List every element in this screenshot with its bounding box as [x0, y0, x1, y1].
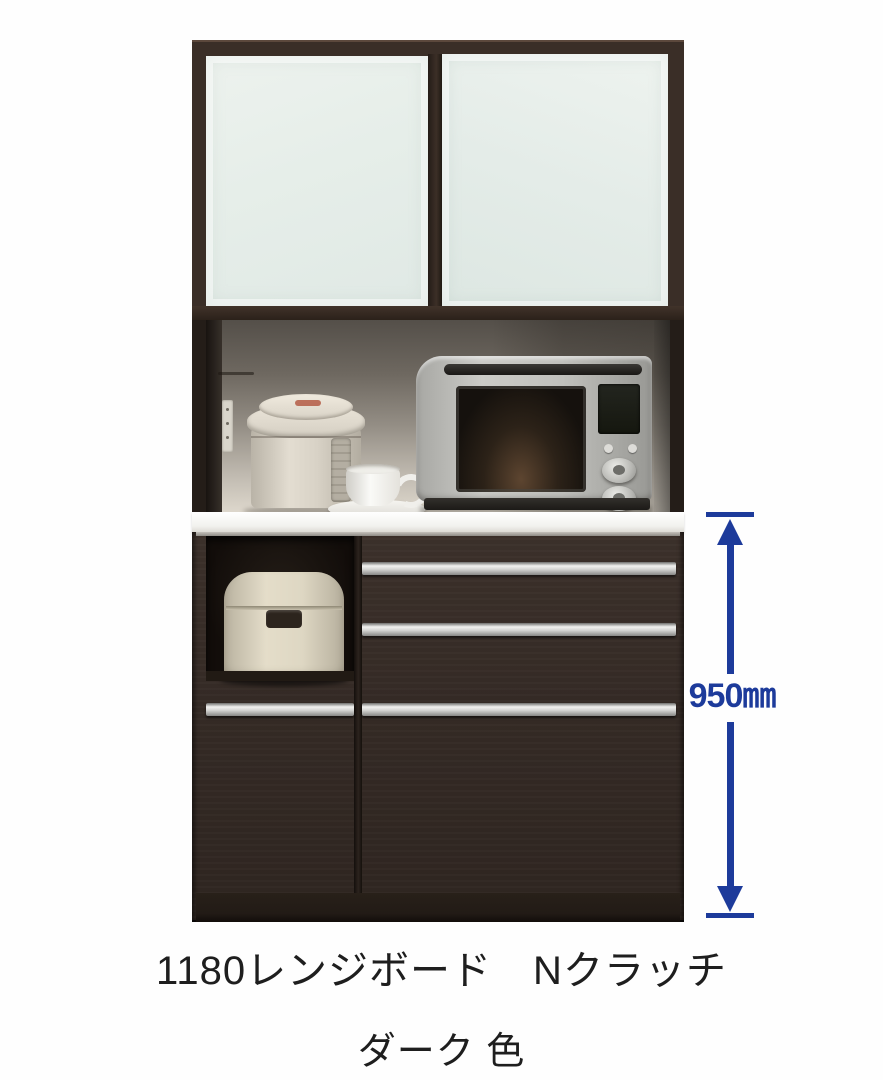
- power-cord: [218, 372, 254, 375]
- upper-cabinet-bottom-rail: [192, 306, 684, 320]
- drawer-handle-bottom-right: [362, 703, 676, 716]
- sliding-glass-door-right: [442, 54, 668, 308]
- rice-cooker: [224, 572, 344, 686]
- dimension-tick-top: [706, 512, 754, 517]
- open-counter-space: [192, 320, 684, 512]
- right-side-wall: [654, 320, 670, 512]
- outlet-strip: [222, 400, 233, 452]
- cabinet-base-kickboard: [196, 893, 680, 922]
- appliance-niche: [206, 536, 354, 681]
- microwave-oven: [416, 356, 652, 512]
- product-photo: 950㎜ 1180レンジボード Nクラッチ ダーク 色: [0, 0, 883, 1080]
- microwave-knob-upper: [602, 458, 636, 483]
- thermo-pot-lid-buttons: [295, 400, 321, 406]
- lower-cabinet: [192, 532, 684, 922]
- microwave-button: [628, 444, 637, 453]
- rice-cooker-latch: [266, 610, 302, 628]
- dimension-tick-bottom: [706, 913, 754, 918]
- niche-floor: [206, 671, 354, 681]
- glass-door-divider-stile: [428, 54, 442, 308]
- microwave-base: [424, 498, 650, 510]
- dimension-shaft-lower: [727, 722, 734, 890]
- product-title: 1180レンジボード Nクラッチ: [0, 946, 883, 996]
- countertop: [192, 512, 684, 532]
- product-color-label: ダーク 色: [0, 1028, 883, 1076]
- sliding-glass-door-left: [206, 56, 428, 306]
- drawer-handle-bottom-left: [206, 703, 354, 716]
- upper-cabinet: [192, 40, 684, 320]
- drawer-handle-top: [362, 562, 676, 575]
- left-side-wall: [206, 320, 222, 512]
- column-divider: [354, 536, 362, 893]
- dimension-shaft-upper: [727, 540, 734, 674]
- dimension-label: 950㎜: [684, 678, 780, 714]
- microwave-door-window: [456, 386, 586, 492]
- cup-rim: [346, 464, 400, 474]
- microwave-handle-bar: [444, 364, 642, 375]
- microwave-display: [598, 384, 640, 434]
- dimension-arrowhead-down: [717, 886, 743, 912]
- drawer-handle-middle: [362, 623, 676, 636]
- microwave-button: [604, 444, 613, 453]
- thermo-pot-lid: [259, 394, 353, 420]
